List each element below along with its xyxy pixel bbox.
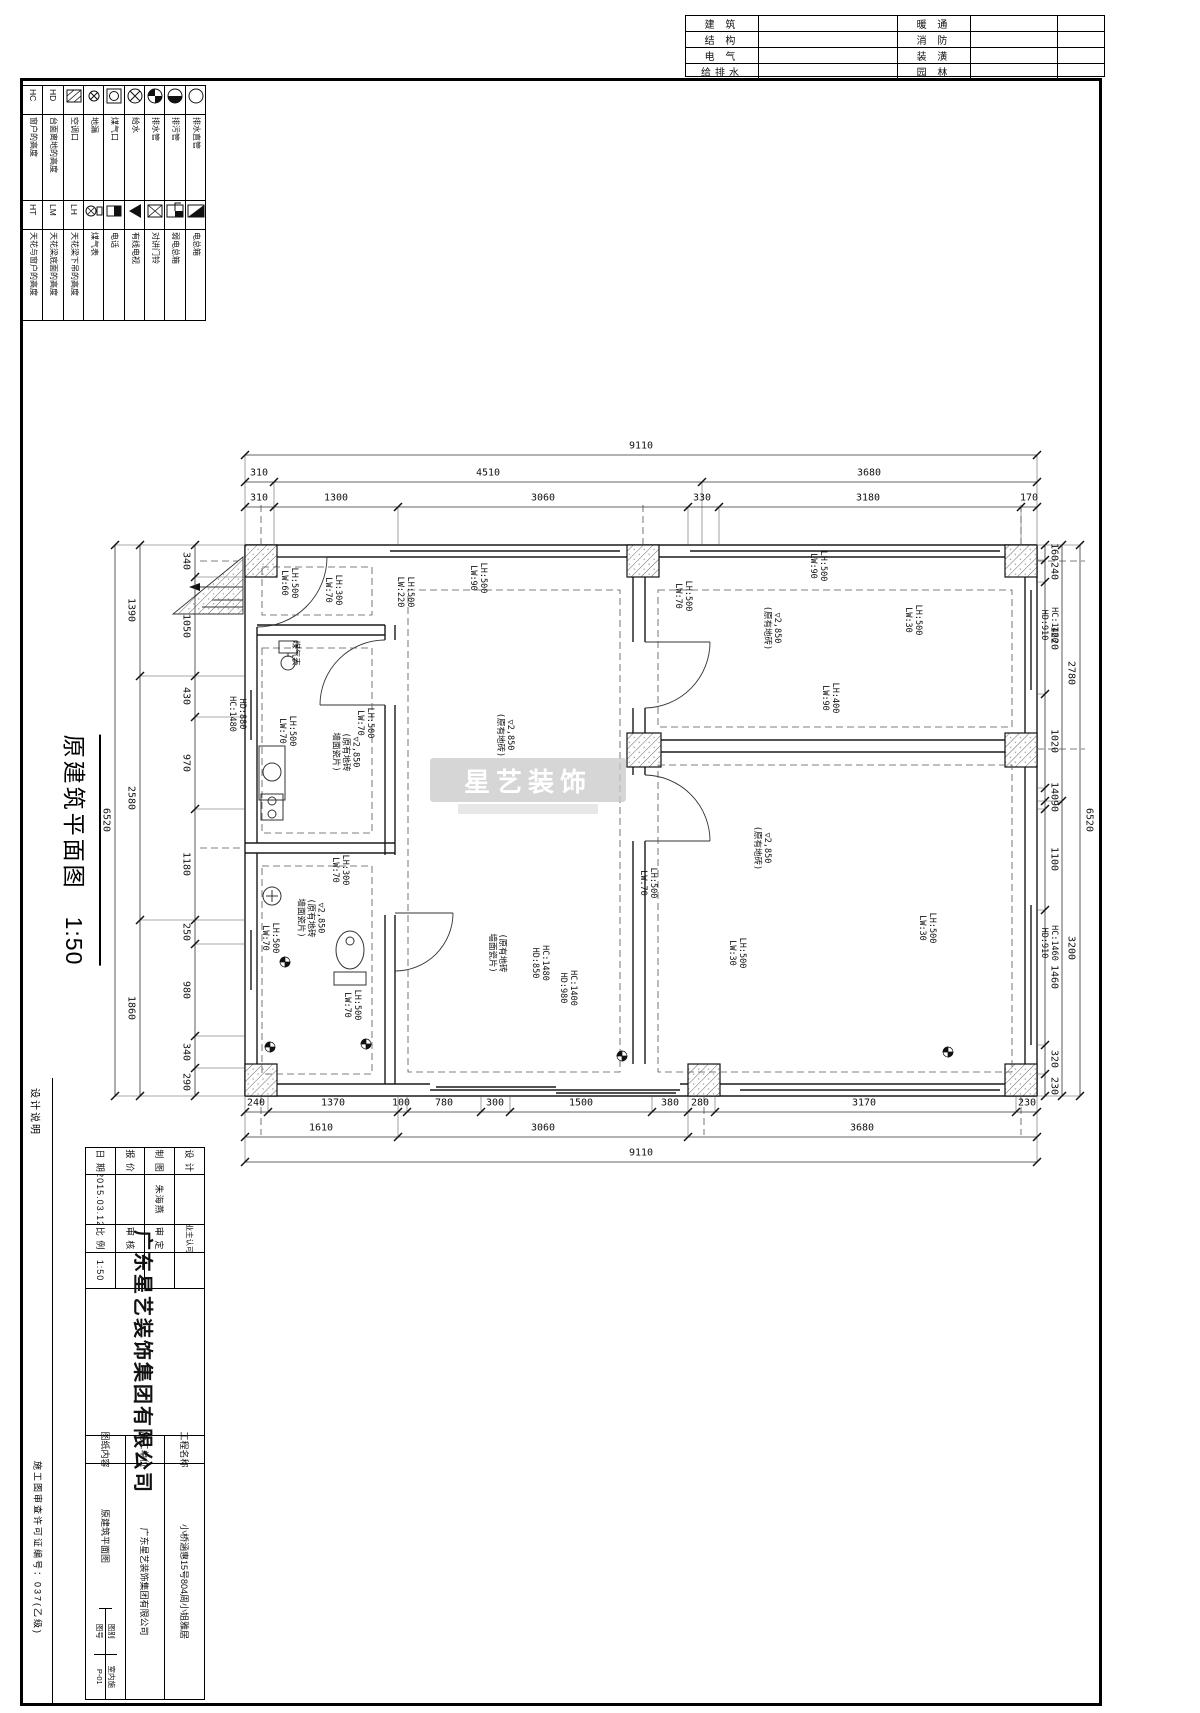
plan-label: LH:500LW:30 <box>727 938 747 969</box>
dimension-text: 100 <box>392 1098 410 1109</box>
plan-label: 煤气表 <box>290 640 300 666</box>
dimension-text: 240 <box>1049 562 1060 580</box>
dimension-text: 230 <box>1018 1098 1036 1109</box>
plan-label: LH:500LW:30 <box>903 605 923 636</box>
quote-value <box>115 1175 145 1224</box>
plan-label: ▽2,850(原有地砖) <box>752 826 772 870</box>
plan-label: HC:1400HD:980 <box>558 970 578 1006</box>
sheet-no-label: 图号 <box>94 1609 105 1654</box>
dimension-text: 300 <box>486 1098 504 1109</box>
quote-label: 报 价 <box>115 1148 145 1174</box>
dimension-text: 970 <box>181 754 192 772</box>
drawing-title-text: 原建筑平面图 <box>61 735 87 891</box>
plan-label: ▽2,850(原有地砖墙面瓷片) <box>295 898 326 937</box>
dimension-text: 340 <box>181 552 192 570</box>
dimension-text: 320 <box>1049 1050 1060 1068</box>
dimension-text: 1370 <box>321 1098 345 1109</box>
title-block-values-col: 朱海燕 2015.03.12 <box>86 1175 204 1225</box>
date-label: 日 期 <box>86 1148 115 1174</box>
plan-label: LH:300LW:70 <box>330 855 350 886</box>
plan-label: ▽2,850(原有地砖墙面瓷片) <box>330 732 361 771</box>
plan-label: HD:880HC:1480 <box>227 696 247 732</box>
dimension-text: 1020 <box>1049 729 1060 753</box>
plan-label: LH:500LW:90 <box>468 563 488 594</box>
dimension-text: 250 <box>181 923 192 941</box>
dimension-text: 1390 <box>126 598 137 622</box>
builder-value: 广东星艺装饰集团有限公司 <box>125 1464 165 1699</box>
plan-label: LH:300LW:70 <box>323 575 343 606</box>
dimension-text: 1300 <box>324 493 348 504</box>
dimension-text: 430 <box>181 687 192 705</box>
dimension-text: 1500 <box>569 1098 593 1109</box>
dimension-text: 230 <box>1049 1077 1060 1095</box>
plan-label: HC:1460HD:910 <box>1039 607 1059 643</box>
dimension-text: 4510 <box>476 468 500 479</box>
project-value: 小桥涵惠15号804周小姐雅居 <box>164 1464 204 1699</box>
dimension-text: 280 <box>691 1098 709 1109</box>
owner-approve-label: 业主认可 <box>174 1225 204 1252</box>
dimension-text: 340 <box>181 1043 192 1061</box>
project-values-col: 小桥涵惠15号804周小姐雅居 广东星艺装饰集团有限公司 原建筑平面图 图别 图… <box>86 1464 204 1699</box>
builder-label: 施工单位 <box>125 1436 165 1463</box>
dimension-text: 290 <box>181 1073 192 1091</box>
dimension-text: 9110 <box>629 1148 653 1159</box>
plan-label: LH:500LW:60 <box>279 568 299 599</box>
owner-approve-value <box>174 1253 204 1288</box>
sheet-no-value: P-01 <box>94 1655 105 1700</box>
category-label: 图别 <box>105 1609 117 1654</box>
dimension-text: 3180 <box>856 493 880 504</box>
company-name: 广东星艺装饰集团有限公司 <box>86 1289 204 1435</box>
dimension-text: 980 <box>181 981 192 999</box>
dimension-text: 2780 <box>1066 661 1077 685</box>
dimension-text: 1610 <box>309 1123 333 1134</box>
dimension-text: 1180 <box>181 852 192 876</box>
plan-label: LH:500LW:70 <box>342 990 362 1021</box>
plan-label: LH:400LW:90 <box>820 683 840 714</box>
dimension-text: 140 <box>1049 782 1060 800</box>
dimension-text: 1100 <box>1049 847 1060 871</box>
dimension-text: 160 <box>1049 543 1060 561</box>
dimension-text: 170 <box>1020 493 1038 504</box>
plan-label: HC:1480HD:850 <box>530 945 550 981</box>
dimension-text: 3170 <box>852 1098 876 1109</box>
plan-label: LH:500LW:30 <box>917 913 937 944</box>
dimension-text: 310 <box>250 493 268 504</box>
plan-label: (原有地砖墙面瓷片) <box>487 933 507 972</box>
dimension-text: 3060 <box>531 493 555 504</box>
dimension-text: 9110 <box>629 441 653 452</box>
plan-label: ▽2,850(原有地砖) <box>762 606 782 650</box>
dimension-text: 6520 <box>1084 808 1095 832</box>
category-value: 室内施 <box>105 1655 117 1700</box>
scale-label: 比 例 <box>86 1225 115 1252</box>
plan-label: HC:1460HD:910 <box>1039 925 1059 961</box>
content-label: 图纸内容 <box>86 1436 125 1463</box>
dimension-text: 3200 <box>1066 936 1077 960</box>
company-name-cell: 广东星艺装饰集团有限公司 <box>86 1289 204 1436</box>
plan-label: LH:500LW:220 <box>395 577 415 608</box>
dimension-text: 1050 <box>181 614 192 638</box>
draft-label: 制 图 <box>145 1148 175 1174</box>
project-label: 工程名称 <box>164 1436 204 1463</box>
dimension-text: 310 <box>250 468 268 479</box>
dimension-text: 90 <box>1049 800 1060 812</box>
plan-label: LH:500LW:90 <box>808 551 828 582</box>
content-value: 原建筑平面图 <box>99 1464 112 1609</box>
dimension-text: 6520 <box>101 808 112 832</box>
dimension-text: 780 <box>435 1098 453 1109</box>
dimension-text: 240 <box>247 1098 265 1109</box>
watermark-bar <box>458 804 598 814</box>
content-row: 原建筑平面图 图别 图号 室内施 P-01 <box>86 1464 125 1699</box>
dimension-text: 330 <box>693 493 711 504</box>
drawing-title: 原建筑平面图1:50 <box>59 735 101 966</box>
dimension-text: 1860 <box>126 996 137 1020</box>
plan-label: LH:500LW:70 <box>673 581 693 612</box>
date-value: 2015.03.12 <box>86 1175 115 1224</box>
dimension-text: 380 <box>661 1098 679 1109</box>
project-labels-col: 工程名称 施工单位 图纸内容 <box>86 1436 204 1464</box>
plan-label: ▽2,850(原有地砖) <box>495 713 515 757</box>
plan-label: LH:500LW:70 <box>638 868 658 899</box>
dimension-text: 3060 <box>531 1123 555 1134</box>
dimension-text: 3680 <box>850 1123 874 1134</box>
plan-label: LH:500LW:70 <box>260 923 280 954</box>
title-block-labels-col: 设 计 制 图 报 价 日 期 <box>86 1148 204 1175</box>
watermark: 星艺装饰 <box>430 758 626 802</box>
scale-value: 1:50 <box>86 1253 115 1288</box>
draft-value: 朱海燕 <box>145 1175 175 1224</box>
dimension-text: 3680 <box>857 468 881 479</box>
dimension-text: 2580 <box>126 786 137 810</box>
dimension-text: 1460 <box>1049 965 1060 989</box>
drawing-sheet: 建 筑 暖 通 结 构 消 防 电 气 装 潢 给排水 园 林 <box>0 0 1200 1713</box>
permit-number-note: 施工图审查许可证编号：037(乙级) <box>32 1461 45 1635</box>
title-block: 设 计 制 图 报 价 日 期 朱海燕 2015.03.12 业主认可 审 定 … <box>85 1147 205 1700</box>
design-notes-label: 设计说明 <box>29 1088 44 1136</box>
drawing-scale: 1:50 <box>61 917 87 966</box>
design-value <box>174 1175 204 1224</box>
design-label: 设 计 <box>174 1148 204 1174</box>
plan-label: LH:500LW:70 <box>277 716 297 747</box>
